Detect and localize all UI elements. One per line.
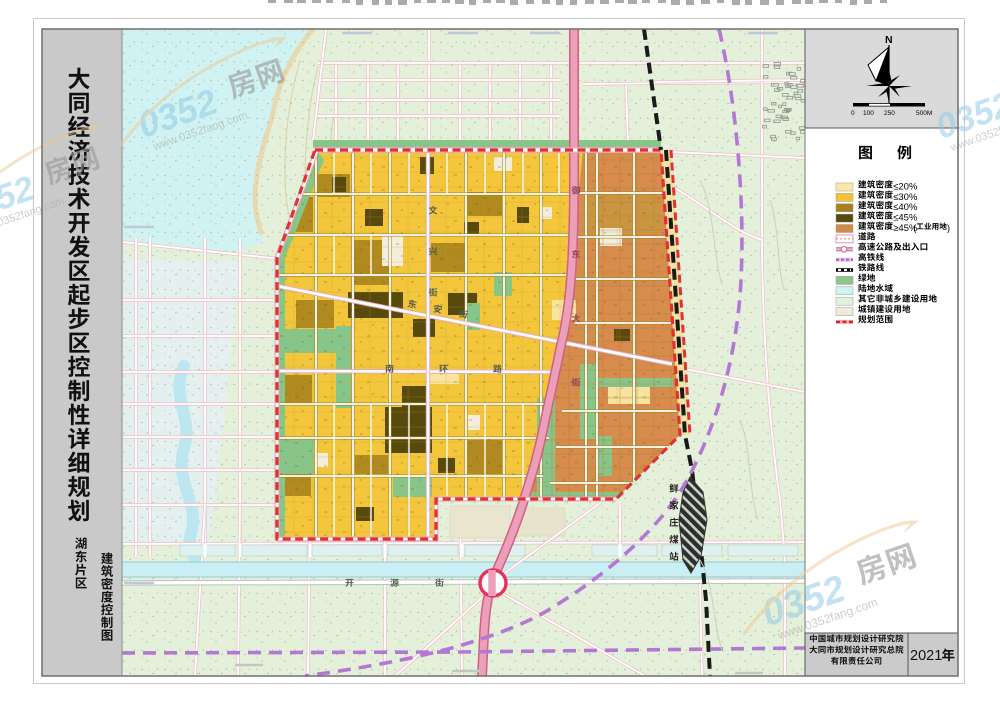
svg-text:N: N (885, 34, 893, 46)
svg-text:250: 250 (884, 110, 895, 117)
svg-text:100: 100 (863, 110, 874, 117)
svg-text:500M: 500M (916, 110, 932, 117)
svg-text:2021: 2021 (910, 648, 942, 664)
svg-text:(: ( (913, 223, 916, 233)
svg-text:): ) (947, 223, 950, 233)
svg-text:≤20%: ≤20% (893, 181, 918, 192)
svg-text:≤30%: ≤30% (893, 192, 918, 203)
svg-text:0: 0 (851, 110, 855, 117)
svg-text:≤45%: ≤45% (893, 213, 918, 224)
